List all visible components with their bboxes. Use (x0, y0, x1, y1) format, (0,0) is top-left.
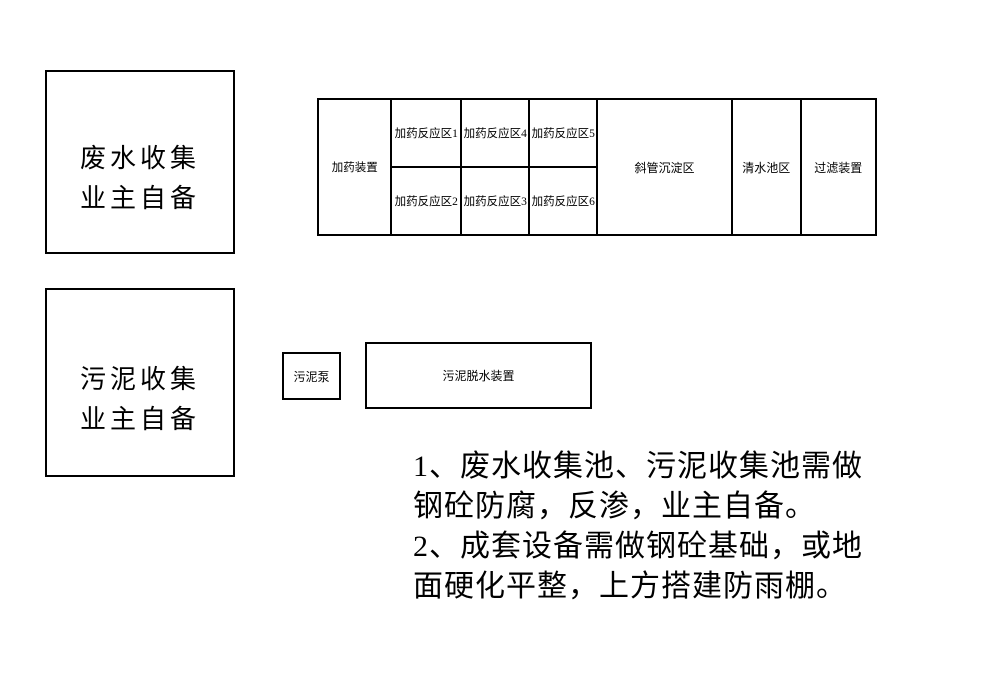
reaction-zone-5-label: 加药反应区5 (532, 125, 595, 141)
layout-diagram: 废水收集 业主自备 污泥收集 业主自备 加药装置 加药反应区1 加药反应区2 加… (0, 0, 992, 697)
reaction-zone-1-label: 加药反应区1 (395, 125, 458, 141)
cell-clear-water-pool: 清水池区 (733, 100, 802, 234)
sludge-dewatering-box: 污泥脱水装置 (365, 342, 592, 409)
cell-reaction-zone-6: 加药反应区6 (530, 168, 596, 234)
reaction-zone-2-label: 加药反应区2 (395, 193, 458, 209)
note-line-3: 2、成套设备需做钢砼基础，或地 (413, 527, 913, 567)
cell-reaction-col-3: 加药反应区5 加药反应区6 (530, 100, 598, 234)
filter-device-label: 过滤装置 (814, 159, 862, 176)
note-line-4: 面硬化平整，上方搭建防雨棚。 (413, 567, 913, 607)
cell-reaction-zone-3: 加药反应区3 (462, 168, 529, 234)
notes-block: 1、废水收集池、污泥收集池需做 钢砼防腐，反渗，业主自备。 2、成套设备需做钢砼… (413, 447, 913, 607)
sludge-collection-label-line2: 业主自备 (80, 400, 200, 440)
reaction-zone-6-label: 加药反应区6 (532, 193, 595, 209)
sludge-pump-box: 污泥泵 (282, 352, 341, 400)
sludge-collection-label-line1: 污泥收集 (80, 360, 200, 400)
note-line-2: 钢砼防腐，反渗，业主自备。 (413, 487, 913, 527)
cell-sedimentation-zone: 斜管沉淀区 (598, 100, 733, 234)
reaction-zone-3-label: 加药反应区3 (464, 193, 527, 209)
dosing-device-label: 加药装置 (332, 159, 378, 175)
sludge-collection-box: 污泥收集 业主自备 (45, 288, 235, 477)
sludge-pump-label: 污泥泵 (293, 368, 329, 385)
cell-reaction-zone-2: 加药反应区2 (392, 168, 460, 234)
sedimentation-zone-label: 斜管沉淀区 (635, 159, 695, 176)
cell-reaction-zone-1: 加药反应区1 (392, 100, 460, 168)
cell-reaction-zone-5: 加药反应区5 (530, 100, 596, 168)
reaction-zone-4-label: 加药反应区4 (464, 125, 527, 141)
cell-reaction-zone-4: 加药反应区4 (462, 100, 529, 168)
wastewater-collection-box: 废水收集 业主自备 (45, 70, 235, 254)
cell-filter-device: 过滤装置 (802, 100, 875, 234)
note-line-1: 1、废水收集池、污泥收集池需做 (413, 447, 913, 487)
sludge-dewatering-label: 污泥脱水装置 (442, 367, 514, 384)
wastewater-collection-label-line2: 业主自备 (80, 179, 200, 219)
process-grid: 加药装置 加药反应区1 加药反应区2 加药反应区4 加药反应区3 加药反应区5 … (317, 98, 877, 236)
cell-dosing-device: 加药装置 (319, 100, 392, 234)
cell-reaction-col-2: 加药反应区4 加药反应区3 (462, 100, 531, 234)
cell-reaction-col-1: 加药反应区1 加药反应区2 (392, 100, 462, 234)
clear-water-pool-label: 清水池区 (742, 159, 790, 176)
wastewater-collection-label-line1: 废水收集 (80, 139, 200, 179)
